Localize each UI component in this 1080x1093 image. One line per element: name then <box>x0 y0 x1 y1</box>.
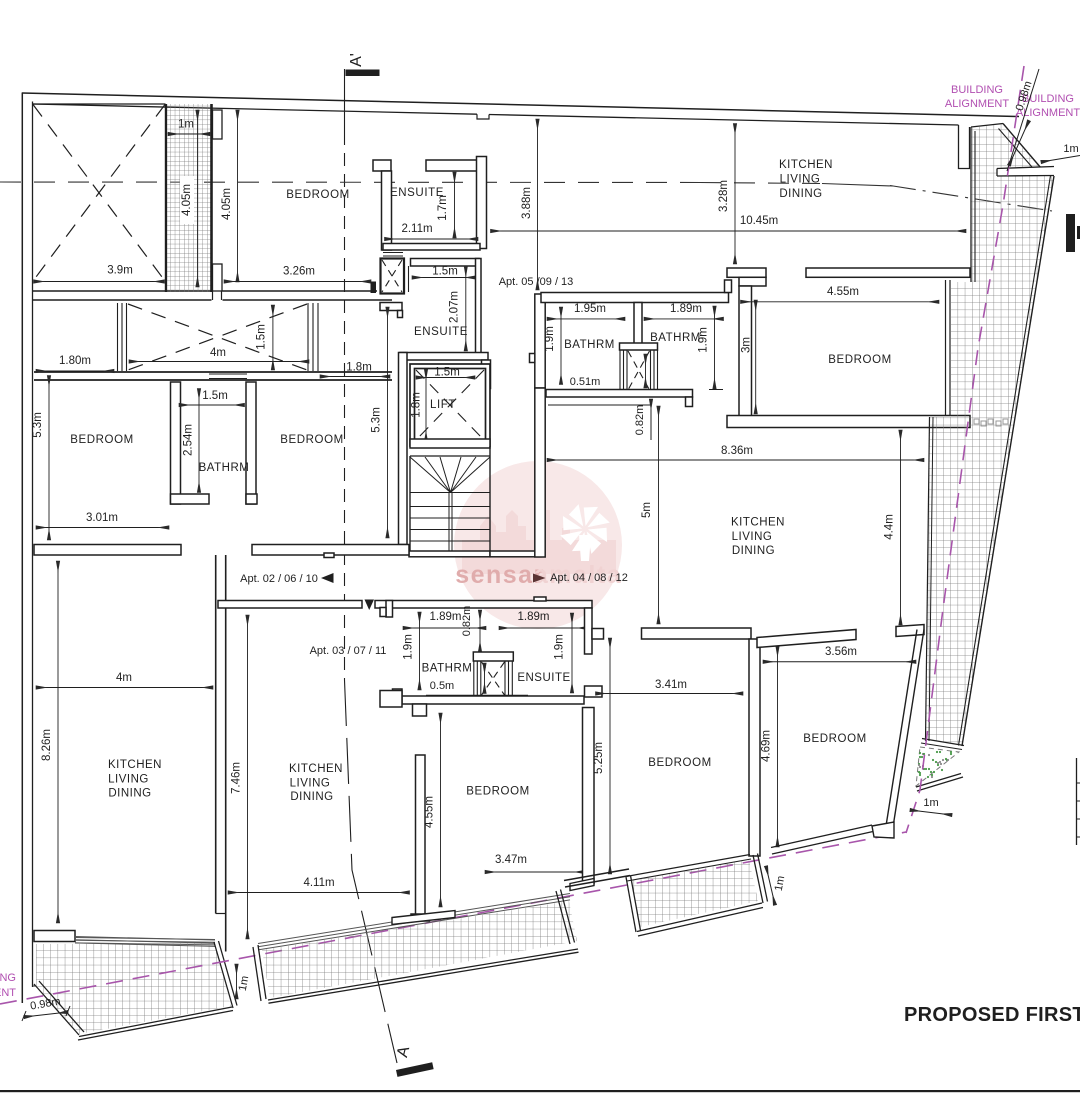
svg-text:1.9m: 1.9m <box>554 634 566 660</box>
svg-text:DINING: DINING <box>108 788 151 800</box>
svg-text:ENSUITE: ENSUITE <box>390 187 444 199</box>
svg-text:Apt. 04 / 08 / 12: Apt. 04 / 08 / 12 <box>550 572 628 584</box>
svg-text:BEDROOM: BEDROOM <box>466 786 530 798</box>
svg-text:BEDROOM: BEDROOM <box>648 757 712 769</box>
svg-text:4m: 4m <box>116 672 132 684</box>
svg-text:BEDROOM: BEDROOM <box>286 189 350 201</box>
svg-text:1.8m: 1.8m <box>346 362 372 374</box>
svg-text:BATHRM: BATHRM <box>564 339 615 351</box>
svg-text:BEDROOM: BEDROOM <box>803 733 867 745</box>
svg-text:3.41m: 3.41m <box>655 679 687 691</box>
svg-text:DINING: DINING <box>779 188 822 200</box>
svg-text:1.95m: 1.95m <box>574 303 606 315</box>
svg-text:LIVING: LIVING <box>290 778 331 790</box>
svg-text:LIVING: LIVING <box>108 774 149 786</box>
svg-text:1.89m: 1.89m <box>430 611 462 623</box>
svg-text:1.80m: 1.80m <box>59 355 91 367</box>
svg-text:5m: 5m <box>641 502 653 518</box>
svg-text:BATHRM: BATHRM <box>650 332 701 344</box>
svg-text:DINING: DINING <box>290 791 333 803</box>
svg-text:1m: 1m <box>923 797 938 809</box>
svg-text:2.07m: 2.07m <box>449 291 461 323</box>
svg-text:BEDROOM: BEDROOM <box>70 434 134 446</box>
svg-text:1.5m: 1.5m <box>256 324 268 350</box>
svg-text:3.88m: 3.88m <box>521 187 533 219</box>
svg-text:0.5m: 0.5m <box>430 680 454 692</box>
svg-text:A': A' <box>348 53 365 67</box>
svg-text:sensar: sensar <box>455 561 545 589</box>
svg-text:4.05m: 4.05m <box>221 188 233 220</box>
svg-text:3.26m: 3.26m <box>283 266 315 278</box>
svg-text:BEDROOM: BEDROOM <box>280 434 344 446</box>
svg-text:4.55m: 4.55m <box>827 286 859 298</box>
svg-text:KITCHEN: KITCHEN <box>731 517 785 529</box>
svg-text:PROPOSED FIRST FLOOR PLAN: PROPOSED FIRST FLOOR PLAN <box>904 1004 1080 1026</box>
svg-text:1.5m: 1.5m <box>432 266 458 278</box>
svg-text:2.11m: 2.11m <box>401 223 432 235</box>
svg-text:5.3m: 5.3m <box>32 412 44 438</box>
svg-text:3m: 3m <box>741 337 753 353</box>
svg-text:BATHRM: BATHRM <box>199 462 250 474</box>
svg-text:ENSUITE: ENSUITE <box>517 672 570 684</box>
svg-text:0.82m: 0.82m <box>634 405 646 436</box>
svg-text:2.54m: 2.54m <box>183 424 195 456</box>
svg-text:1.9m: 1.9m <box>403 634 415 660</box>
svg-text:1.8m: 1.8m <box>411 392 423 418</box>
svg-text:7.46m: 7.46m <box>231 762 243 794</box>
svg-text:1.5m: 1.5m <box>434 367 460 379</box>
svg-text:KITCHEN: KITCHEN <box>779 159 833 171</box>
svg-text:4.11m: 4.11m <box>303 877 334 889</box>
svg-text:1.89m: 1.89m <box>518 611 550 623</box>
svg-text:ENSUITE: ENSUITE <box>414 326 468 338</box>
svg-text:KITCHEN: KITCHEN <box>108 759 162 771</box>
svg-text:Apt. 03 / 07 / 11: Apt. 03 / 07 / 11 <box>310 645 387 657</box>
svg-text:5.25m: 5.25m <box>593 742 605 774</box>
svg-text:1.89m: 1.89m <box>670 303 702 315</box>
svg-text:BUILDING: BUILDING <box>951 84 1003 96</box>
svg-text:BUILDING: BUILDING <box>0 972 16 984</box>
svg-text:LIVING: LIVING <box>732 531 773 543</box>
svg-text:4.69m: 4.69m <box>761 730 773 762</box>
svg-text:8.36m: 8.36m <box>721 445 753 457</box>
svg-text:BATHRM: BATHRM <box>422 663 473 675</box>
svg-text:ALIGNMENT: ALIGNMENT <box>0 987 16 999</box>
svg-text:10.45m: 10.45m <box>740 215 778 227</box>
svg-text:1.9m: 1.9m <box>544 326 556 352</box>
svg-text:4.05m: 4.05m <box>181 184 193 216</box>
svg-text:3.9m: 3.9m <box>107 265 133 277</box>
svg-text:LIFT: LIFT <box>430 399 456 411</box>
svg-text:4.4m: 4.4m <box>884 514 896 540</box>
svg-text:KITCHEN: KITCHEN <box>289 763 343 775</box>
svg-text:1m: 1m <box>178 119 194 131</box>
svg-text:ALIGNMENT: ALIGNMENT <box>945 98 1009 110</box>
svg-text:8.26m: 8.26m <box>41 729 53 761</box>
svg-text:3.47m: 3.47m <box>495 854 527 866</box>
svg-text:4m: 4m <box>210 347 226 359</box>
svg-text:3.01m: 3.01m <box>86 512 118 524</box>
svg-text:3.28m: 3.28m <box>718 180 730 212</box>
svg-text:LIVING: LIVING <box>780 174 821 186</box>
svg-text:0.82m: 0.82m <box>461 606 473 637</box>
svg-text:DINING: DINING <box>732 545 775 557</box>
svg-text:Apt. 05 /09 / 13: Apt. 05 /09 / 13 <box>499 276 574 288</box>
svg-text:1.7m: 1.7m <box>437 195 449 221</box>
svg-text:BEDROOM: BEDROOM <box>828 354 892 366</box>
svg-text:3.56m: 3.56m <box>825 646 857 658</box>
svg-text:Apt. 02 / 06 / 10: Apt. 02 / 06 / 10 <box>240 573 318 585</box>
svg-text:0.51m: 0.51m <box>570 376 601 388</box>
svg-text:1.5m: 1.5m <box>202 390 228 402</box>
svg-text:5.3m: 5.3m <box>371 407 383 433</box>
svg-text:1m: 1m <box>1063 143 1078 155</box>
